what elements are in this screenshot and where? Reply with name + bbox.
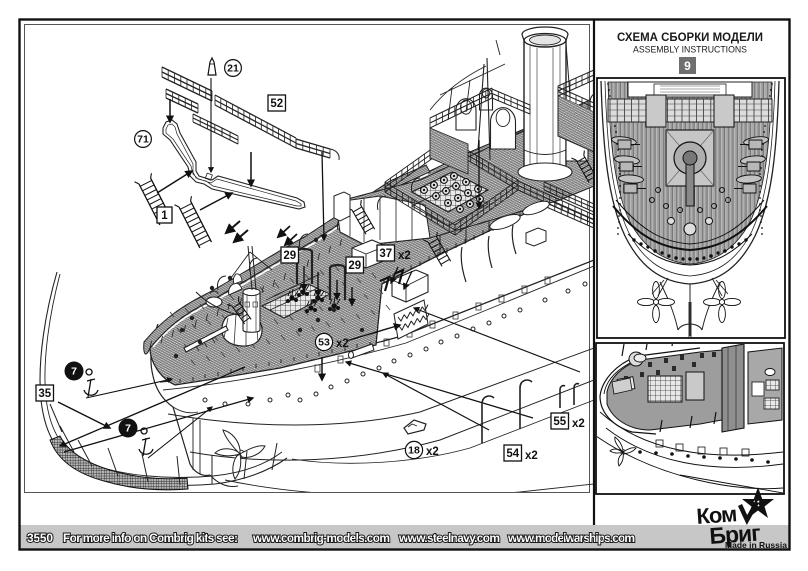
svg-text:x2: x2 <box>336 338 349 350</box>
svg-text:29: 29 <box>283 250 296 262</box>
svg-text:18: 18 <box>408 445 420 457</box>
svg-text:52: 52 <box>270 98 283 110</box>
svg-text:www.steelnavy.com: www.steelnavy.com <box>398 531 500 545</box>
svg-text:www.modelwarships.com: www.modelwarships.com <box>507 531 635 545</box>
svg-text:x2: x2 <box>572 418 585 430</box>
svg-text:1: 1 <box>161 210 168 222</box>
svg-text:7: 7 <box>71 366 77 378</box>
svg-text:29: 29 <box>348 260 361 272</box>
svg-text:Made in Russia: Made in Russia <box>725 540 787 550</box>
svg-text:x2: x2 <box>398 250 411 262</box>
svg-text:7: 7 <box>125 423 131 435</box>
svg-text:53: 53 <box>318 337 330 349</box>
svg-text:21: 21 <box>227 63 239 75</box>
svg-text:55: 55 <box>553 416 566 428</box>
svg-text:35: 35 <box>38 388 51 400</box>
svg-text:9: 9 <box>684 59 691 73</box>
svg-text:71: 71 <box>137 134 149 146</box>
svg-text:www.combrig-models.com: www.combrig-models.com <box>252 531 390 545</box>
svg-text:x2: x2 <box>426 446 439 458</box>
svg-text:37: 37 <box>379 248 392 260</box>
svg-text:For more info on Combrig kits: For more info on Combrig kits see: <box>63 531 238 545</box>
svg-text:ASSEMBLY INSTRUCTIONS: ASSEMBLY INSTRUCTIONS <box>633 45 747 56</box>
svg-text:3550: 3550 <box>27 531 53 545</box>
svg-text:54: 54 <box>506 448 519 460</box>
svg-text:СХЕМА СБОРКИ МОДЕЛИ: СХЕМА СБОРКИ МОДЕЛИ <box>617 30 763 44</box>
svg-text:x2: x2 <box>525 450 538 462</box>
